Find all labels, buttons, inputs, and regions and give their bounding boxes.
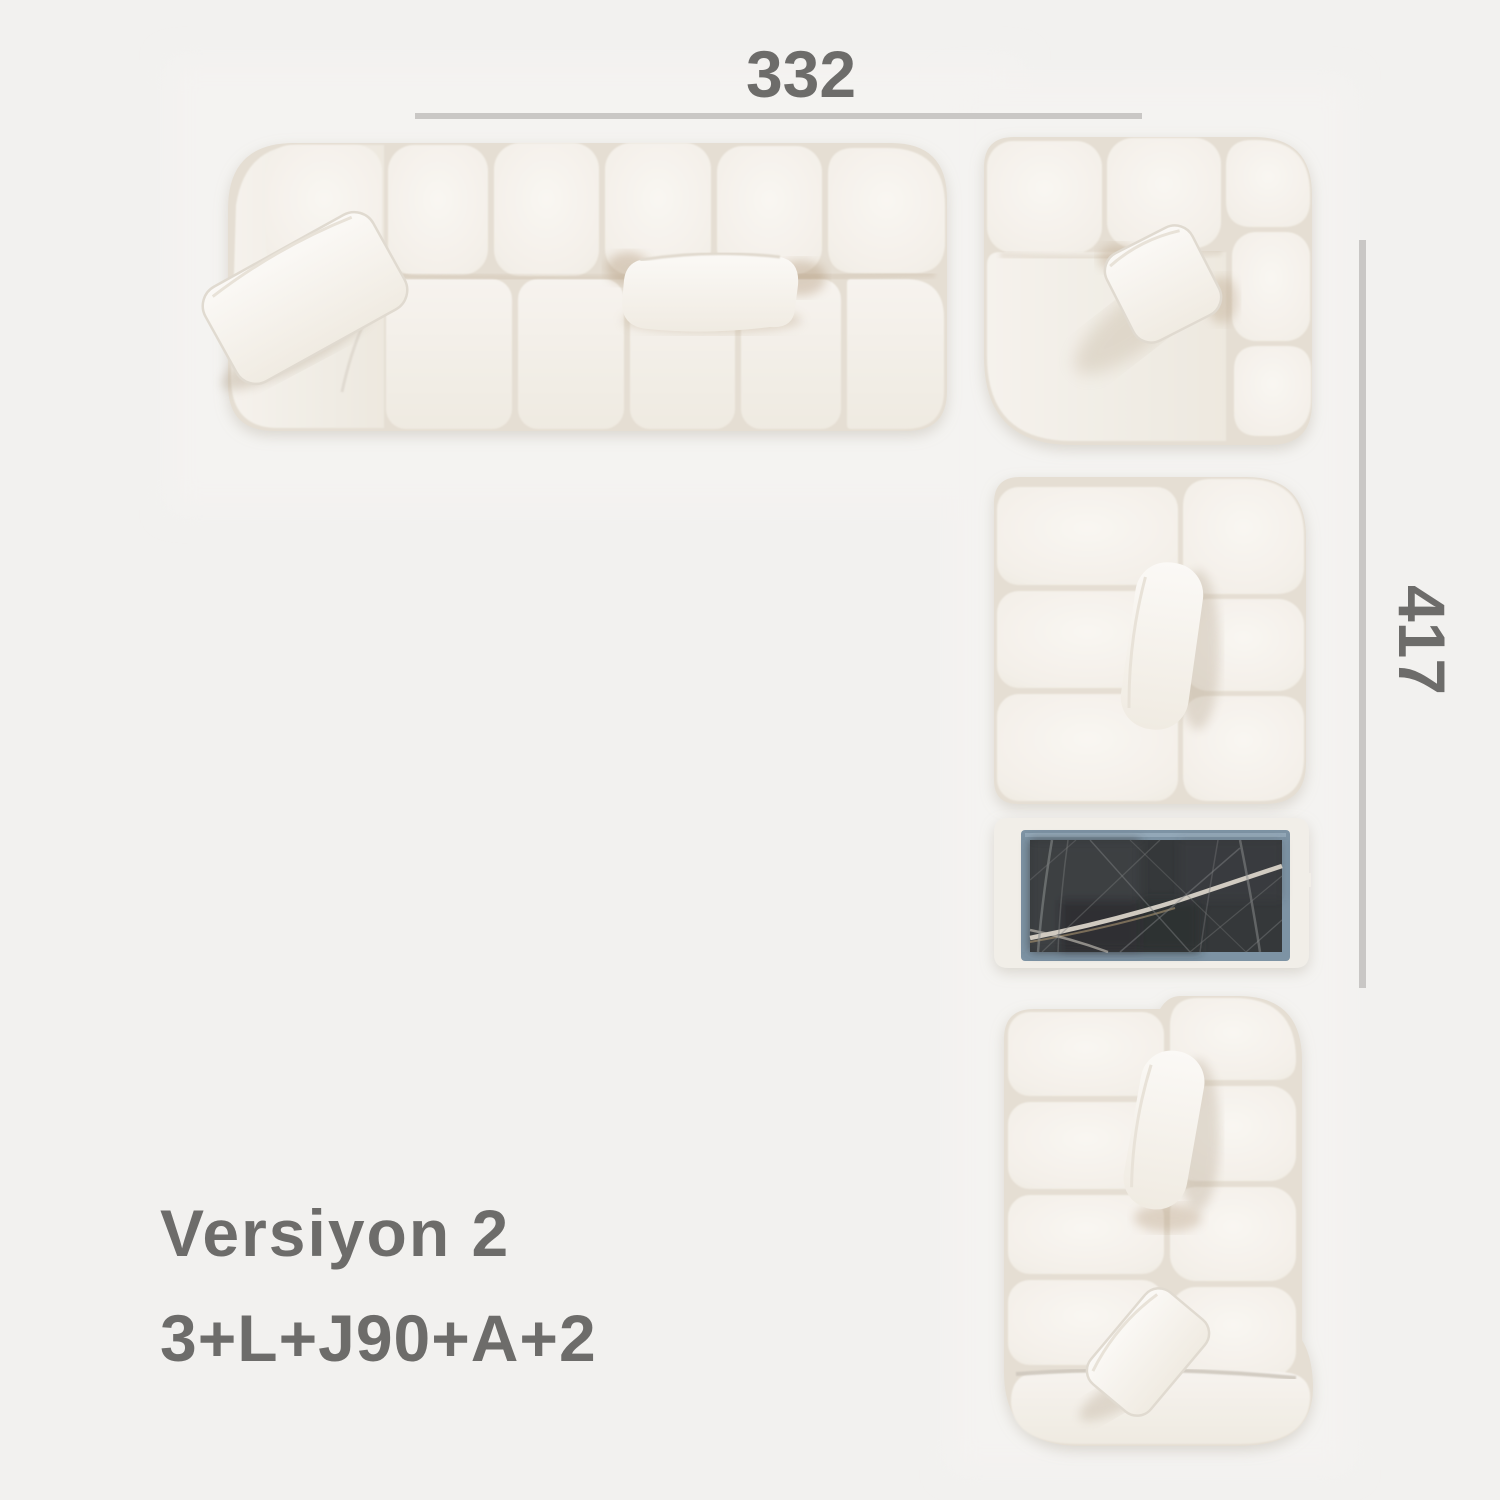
svg-text:Versiyon 2: Versiyon 2 [160, 1196, 510, 1270]
svg-text:417: 417 [1385, 585, 1459, 695]
svg-text:3+L+J90+A+2: 3+L+J90+A+2 [160, 1301, 597, 1375]
svg-text:332: 332 [746, 37, 856, 111]
